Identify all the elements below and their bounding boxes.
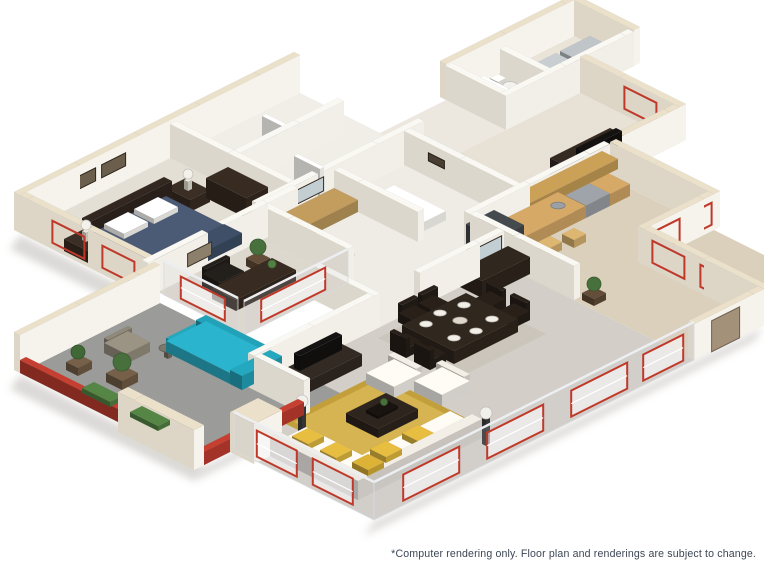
plate-6 [458, 302, 471, 308]
floor-plan-page: *Computer rendering only. Floor plan and… [0, 0, 764, 573]
kitchen-sink [551, 202, 565, 209]
floor-lamp-2 [480, 407, 492, 419]
kitchen-plant [587, 277, 601, 291]
lamp-stem-2 [184, 178, 192, 191]
centerpiece [453, 317, 467, 324]
plate-5 [486, 316, 499, 322]
balcony-plant [113, 353, 131, 371]
plate-3 [470, 328, 483, 334]
balcony-plant-2 [71, 345, 85, 359]
office-plant [250, 239, 266, 255]
rendering-disclaimer: *Computer rendering only. Floor plan and… [391, 548, 756, 560]
plate-2 [420, 321, 433, 327]
apartment-3d-floor-plan [0, 0, 764, 573]
desk-plant [268, 260, 276, 268]
coffee-table-plant [381, 399, 388, 406]
plate-4 [434, 310, 447, 316]
plate-1 [448, 335, 461, 341]
lamp-2 [183, 169, 193, 179]
